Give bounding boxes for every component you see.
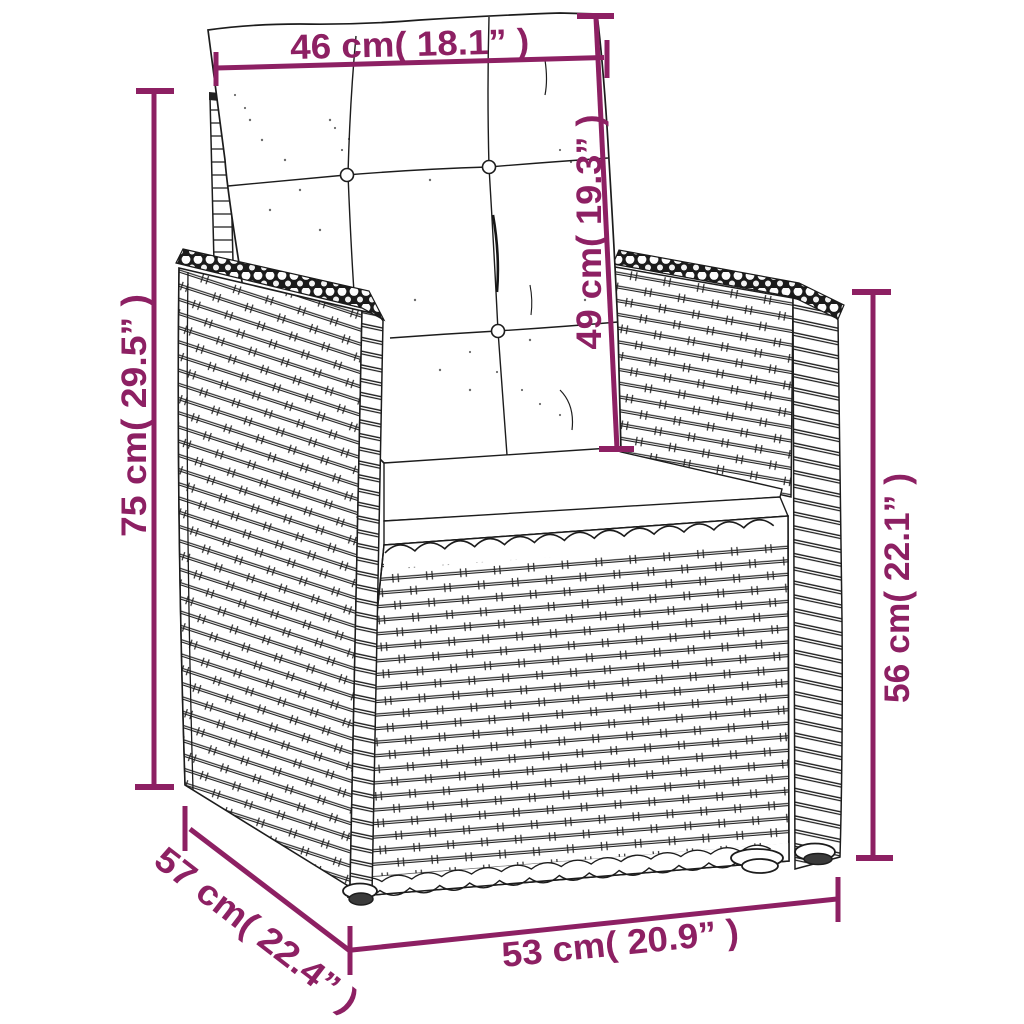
svg-text:75 cm( 29.5” ): 75 cm( 29.5” ) (115, 294, 154, 537)
svg-text:46 cm( 18.1” ): 46 cm( 18.1” ) (290, 22, 530, 67)
svg-text:49 cm( 19.3” ): 49 cm( 19.3” ) (570, 115, 609, 350)
svg-text:56 cm( 22.1” ): 56 cm( 22.1” ) (878, 473, 917, 703)
